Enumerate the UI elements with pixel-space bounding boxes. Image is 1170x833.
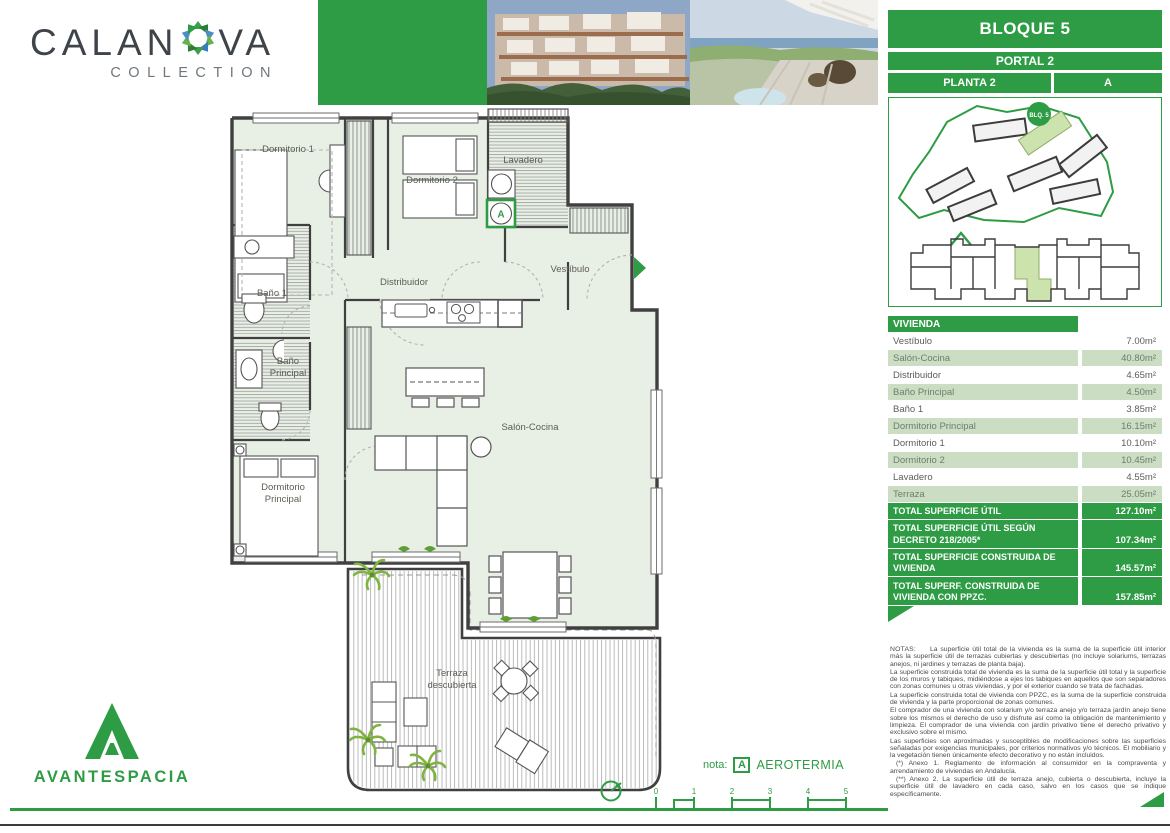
- table-row: Vestíbulo 7.00m²: [888, 333, 1162, 349]
- label-salon-cocina: Salón-Cocina: [501, 422, 559, 433]
- table-tail-triangle: [888, 606, 914, 622]
- table-total-row: TOTAL SUPERFICIE ÚTIL SEGÚN DECRETO 218/…: [888, 520, 1162, 548]
- page-bottom-rule: [0, 824, 1170, 826]
- svg-text:0: 0: [654, 787, 659, 796]
- calanova-logo: CALAN VA: [30, 20, 280, 81]
- avantespacia-logo: AVANTESPACIA: [22, 703, 202, 787]
- table-row: Lavadero 4.55m²: [888, 469, 1162, 485]
- entrance-arrow-icon: [634, 257, 646, 279]
- green-block: [318, 0, 487, 105]
- notes-paragraph: Las superficies son aproximadas y suscep…: [890, 738, 1166, 760]
- photo-building-render: [487, 0, 690, 105]
- photo-terrace-view: [690, 0, 878, 105]
- table-row: Dormitorio Principal 16.15m²: [888, 418, 1162, 434]
- aerotermia-note: nota: A AEROTERMIA: [703, 757, 844, 773]
- label-distribuidor: Distribuidor: [380, 277, 428, 288]
- notes-block: NOTAS:La superficie útil total de la viv…: [890, 646, 1166, 799]
- label-terraza-2: descubierta: [427, 680, 477, 691]
- bloque-header: BLOQUE 5: [888, 10, 1162, 48]
- notes-corner-triangle: [1140, 792, 1164, 807]
- table-row: Baño 1 3.85m²: [888, 401, 1162, 417]
- scale-numbers: 0 1 2 3 4 5: [654, 787, 849, 796]
- location-diagrams: BLQ. 5: [888, 97, 1162, 307]
- table-row: Terraza 25.05m²: [888, 486, 1162, 502]
- table-row: Dormitorio 2 10.45m²: [888, 452, 1162, 468]
- calanova-word-right: VA: [218, 22, 275, 64]
- notes-paragraph: La superficie construida total de vivien…: [890, 692, 1166, 707]
- table-row: Dormitorio 1 10.10m²: [888, 435, 1162, 451]
- planta-row: PLANTA 2 A: [888, 73, 1162, 93]
- avantespacia-icon: [85, 703, 139, 759]
- dining-table: [489, 552, 571, 618]
- label-bano-principal-1: Baño: [277, 356, 299, 367]
- lavadero-appliances: A: [487, 170, 515, 227]
- label-dorm-principal-1: Dormitorio: [261, 482, 305, 493]
- table-row: Salón-Cocina 40.80m²: [888, 350, 1162, 366]
- portal-header: PORTAL 2: [888, 52, 1162, 70]
- notes-footnote: (*) Anexo 1. Reglamento de información a…: [890, 760, 1166, 775]
- label-dorm-principal-2: Principal: [265, 494, 301, 505]
- site-buildings: [926, 118, 1106, 221]
- table-total-row: TOTAL SUPERFICIE ÚTIL 127.10m²: [888, 503, 1162, 519]
- aerotermia-legend-icon: A: [733, 757, 750, 773]
- notes-paragraph: El comprador de una vivienda con solariu…: [890, 707, 1166, 736]
- table-total-row: TOTAL SUPERF. CONSTRUIDA DE VIVIENDA CON…: [888, 577, 1162, 605]
- site-plan: BLQ. 5: [889, 100, 1159, 226]
- north-indicator-icon: [598, 776, 626, 809]
- scale-bar: 0 1 2 3 4 5: [648, 786, 860, 821]
- label-vestibulo: Vestíbulo: [550, 264, 589, 275]
- table-total-row: TOTAL SUPERFICIE CONSTRUIDA DE VIVIENDA …: [888, 549, 1162, 577]
- table-row: Distribuidor 4.65m²: [888, 367, 1162, 383]
- label-dormitorio2: Dormitorio 2: [406, 175, 458, 186]
- svg-text:3: 3: [768, 787, 773, 796]
- table-row: Baño Principal 4.50m²: [888, 384, 1162, 400]
- calanova-word-left: CALAN: [30, 22, 178, 64]
- svg-text:4: 4: [806, 787, 811, 796]
- notes-title: NOTAS:: [890, 646, 916, 653]
- letter-header: A: [1054, 73, 1162, 93]
- notes-paragraph: NOTAS:La superficie útil total de la viv…: [890, 646, 1166, 668]
- kitchen-island: [406, 368, 484, 407]
- avantespacia-wordmark: AVANTESPACIA: [22, 768, 202, 787]
- svg-text:5: 5: [844, 787, 849, 796]
- kitchen: [382, 300, 522, 327]
- floorplan-sheet: CALAN VA: [0, 0, 1170, 833]
- right-panel: BLOQUE 5 PORTAL 2 PLANTA 2 A BLQ. 5: [888, 0, 1162, 622]
- svg-text:2: 2: [730, 787, 735, 796]
- label-bano1: Baño 1: [257, 288, 287, 299]
- table-header-label: VIVIENDA: [888, 316, 1078, 332]
- photo-strip: [318, 0, 878, 105]
- site-badge-label: BLQ. 5: [1029, 113, 1049, 119]
- calanova-o-icon: [180, 20, 216, 65]
- planta-header: PLANTA 2: [888, 73, 1051, 93]
- label-bano-principal-2: Principal: [270, 368, 306, 379]
- elevation-highlighted-unit: [1015, 247, 1051, 301]
- label-lavadero: Lavadero: [503, 155, 543, 166]
- table-header-row: VIVIENDA: [888, 316, 1162, 332]
- nota-label: nota:: [703, 759, 727, 771]
- notes-footnote: (**) Anexo 2. La superficie útil de terr…: [890, 776, 1166, 798]
- label-terraza-1: Terraza: [436, 668, 468, 679]
- floorplan-drawing: A: [215, 100, 675, 805]
- label-dormitorio1: Dormitorio 1: [262, 144, 314, 155]
- footer-green-rule: [10, 808, 888, 811]
- notes-paragraph: La superficie construida total de vivien…: [890, 669, 1166, 691]
- svg-text:1: 1: [692, 787, 697, 796]
- aerotermia-text: AEROTERMIA: [756, 758, 844, 772]
- area-table: VIVIENDA Vestíbulo 7.00m² Salón-Cocina 4…: [888, 316, 1162, 622]
- calanova-subtitle: COLLECTION: [30, 65, 280, 81]
- calanova-wordmark: CALAN VA: [30, 20, 280, 65]
- aerotermia-marker-letter: A: [497, 210, 504, 221]
- elevation-diagram: [889, 231, 1159, 311]
